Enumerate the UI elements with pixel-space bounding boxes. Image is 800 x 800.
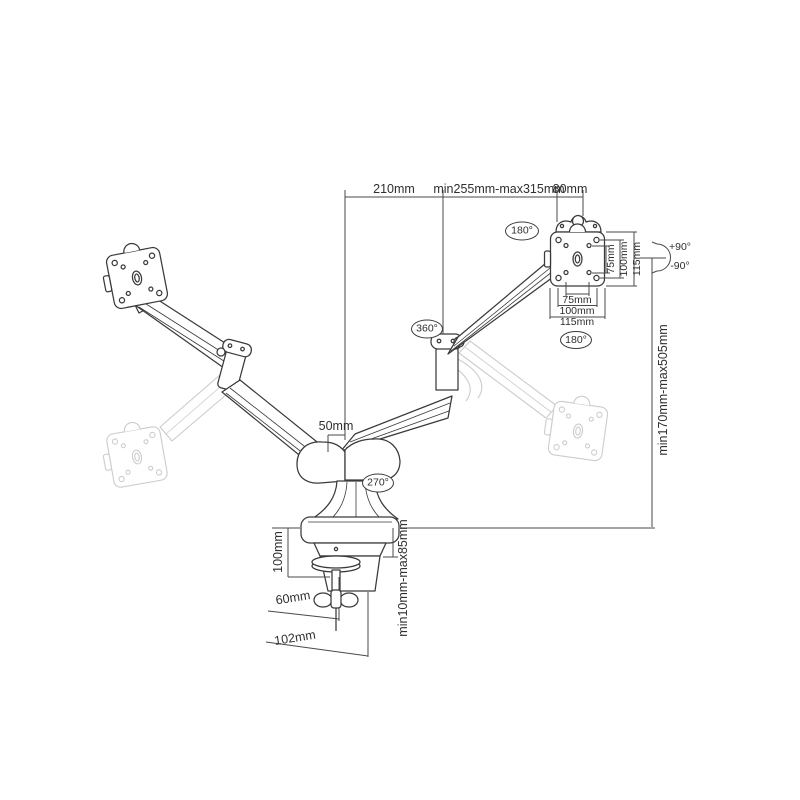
vesa-vertical-75-label: 75mm <box>606 244 617 273</box>
rotation-badge-base-swivel: 270° <box>362 474 394 493</box>
dim-arm-reach-label: min255mm-max315mm <box>433 183 564 196</box>
vesa-horizontal-100-label: 100mm <box>559 306 594 317</box>
rot-top-swivel-text: 180° <box>511 226 533 237</box>
desk-base-plate <box>301 517 399 543</box>
tilt-down-label: -90° <box>670 261 689 272</box>
dim-clamp-range-label: min10mm-max85mm <box>397 519 410 636</box>
vesa-vertical-115-label: 115mm <box>632 242 643 276</box>
rotation-badge-top-swivel: 180° <box>505 222 539 241</box>
mount-line-art <box>0 0 800 800</box>
pivot-left <box>217 348 225 356</box>
desk-clamp <box>312 543 386 631</box>
vesa-plate-right <box>545 224 605 286</box>
vesa-vertical-100-label: 100mm <box>619 241 630 276</box>
dim-clamp-height-label: 100mm <box>272 531 285 573</box>
rot-base-swivel-text: 270° <box>367 478 389 489</box>
dim-210mm-label: 210mm <box>373 183 415 196</box>
rotation-badge-arm-swivel: 360° <box>411 320 443 339</box>
vesa-horizontal-75-label: 75mm <box>562 295 591 306</box>
gas-spring-arm-right-upper <box>448 258 560 354</box>
vesa-horizontal-115-label: 115mm <box>560 317 594 328</box>
dim-50mm-label: 50mm <box>319 420 354 433</box>
dim-height-range-label: min170mm-max505mm <box>657 324 670 455</box>
dim-80mm-label: 80mm <box>553 183 588 196</box>
rot-plate-text: 180° <box>565 335 587 346</box>
clamp-knob <box>314 593 332 607</box>
rot-arm-swivel-text: 360° <box>416 324 438 335</box>
ghost-vesa-plate-left <box>98 418 168 489</box>
dimension-diagram: 210mm min255mm-max315mm 80mm 50mm min170… <box>0 0 800 800</box>
tilt-up-label: +90° <box>669 242 691 253</box>
rotation-badge-plate: 180° <box>560 331 592 349</box>
vesa-plate-left <box>98 238 169 310</box>
